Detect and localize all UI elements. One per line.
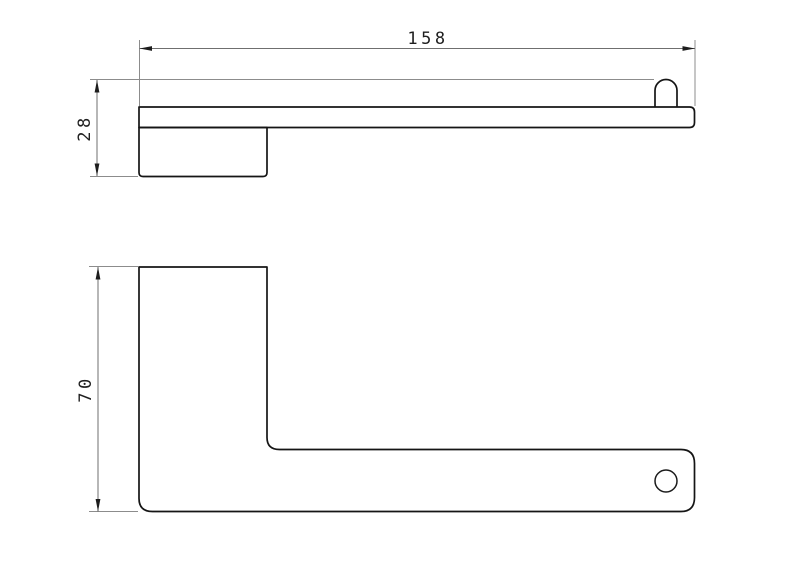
depth-arrow-top [95,80,100,93]
height-arrow-top [96,267,101,280]
front-view [139,267,695,512]
height-dimension-label: 70 [76,375,96,402]
top-view-mount-block-outline [139,128,267,177]
length-arrow-right [683,46,696,51]
front-view-profile-outline [139,267,695,512]
drawing-sheet: 158 28 70 [0,0,800,565]
depth-dimension-label: 28 [75,114,95,141]
length-dimension-label: 158 [407,29,448,49]
top-view-rail-outline [139,107,695,128]
front-view-mount-hole [655,470,677,492]
dimension-height: 70 [76,267,138,512]
top-view [139,80,695,177]
length-arrow-left [140,46,153,51]
depth-arrow-bottom [95,164,100,177]
technical-drawing-canvas: 158 28 70 [0,0,800,565]
height-arrow-bottom [96,499,101,512]
top-view-hanger-pin-outline [655,80,677,108]
dimension-length: 158 [140,29,696,106]
